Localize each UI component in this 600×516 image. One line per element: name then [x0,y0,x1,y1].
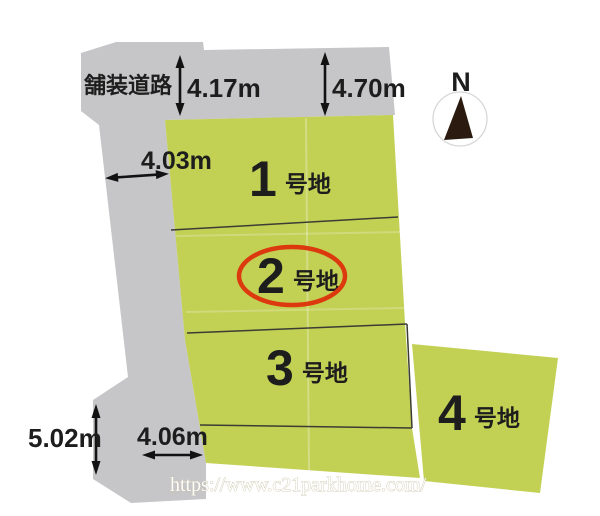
compass: N [433,67,487,146]
dimension-label-upper-left: 4.03m [141,147,212,175]
dimension-label-bottom: 4.06m [137,423,208,451]
dimension-label-top-left: 4.17m [187,73,261,103]
lot-layout-diagram: 舗装道路 4.17m 4.70m 4.03m 5.02m 4.06m 1号地 2… [0,0,600,516]
dimension-label-lower-left: 5.02m [28,423,102,453]
road-label: 舗装道路 [83,73,173,98]
watermark-text: https://www.c21parkhome.com/ [170,474,426,496]
dimension-label-top-right: 4.70m [332,73,406,103]
